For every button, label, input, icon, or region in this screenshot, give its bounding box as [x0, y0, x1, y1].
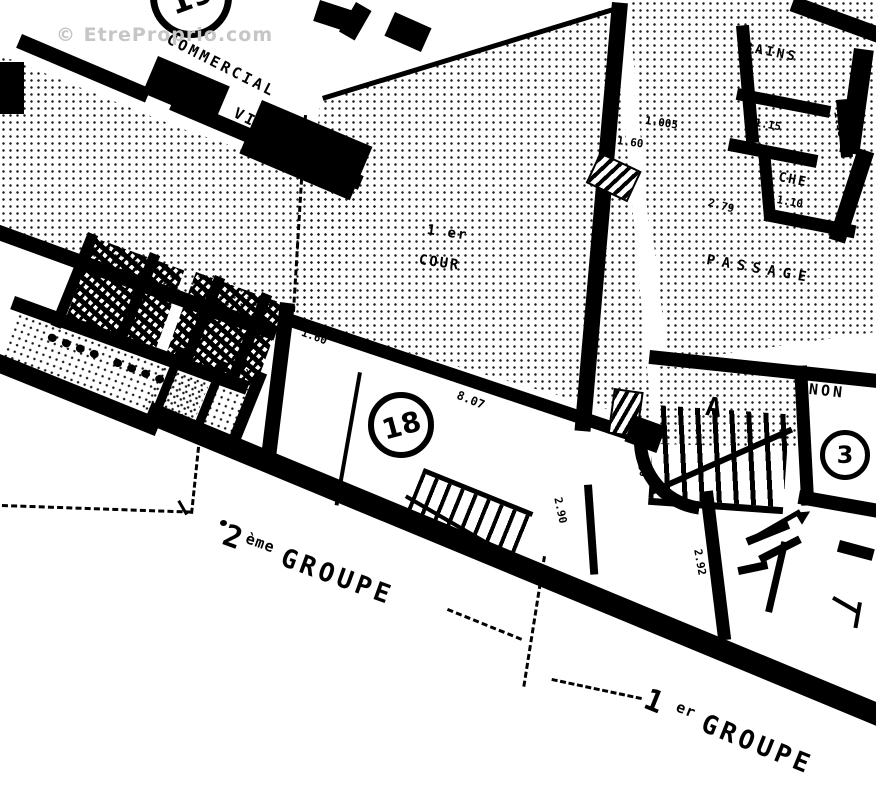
unit-circle-18: 18 — [368, 392, 434, 458]
group1-number: 1 — [639, 682, 673, 723]
group2-word: GROUPE — [277, 543, 398, 612]
group1-word: GROUPE — [697, 709, 818, 781]
dimension-label: 2.90 — [551, 496, 569, 525]
cut-text-blob-3 — [384, 12, 431, 52]
group2-label: 2èmeGROUPE — [218, 518, 399, 612]
left-edge-stub — [0, 62, 24, 114]
dashed-line-after-group2 — [447, 608, 522, 641]
winding-staircase — [725, 505, 820, 625]
unit-circle-3: 3 — [820, 430, 870, 480]
unit-18-number: 18 — [378, 404, 424, 446]
dashed-line-vertical-left — [190, 438, 201, 514]
wc-label: WC — [759, 92, 781, 110]
group2-superscript: ème — [243, 529, 277, 556]
unit-3-number: 3 — [837, 441, 854, 469]
group1-superscript: er — [673, 698, 698, 722]
floor-plan: 19 18 3 COMMERCIAL NON VISITE 1 er COUR … — [0, 0, 876, 796]
dashed-line-before-group1 — [551, 678, 642, 700]
watermark-text: © EtreProprio.com — [56, 24, 273, 46]
right-wall-stub — [837, 540, 875, 561]
group1-label: 1erGROUPE — [639, 682, 819, 782]
non-label: NON — [808, 380, 846, 402]
dimension-label: 2.92 — [691, 548, 708, 576]
bracket-mark-v — [853, 602, 861, 628]
unit-19-number: 19 — [164, 0, 219, 22]
boundary-dot — [220, 520, 227, 526]
dashed-line-horizontal-left — [2, 504, 192, 514]
room18-right-wall — [584, 484, 598, 574]
